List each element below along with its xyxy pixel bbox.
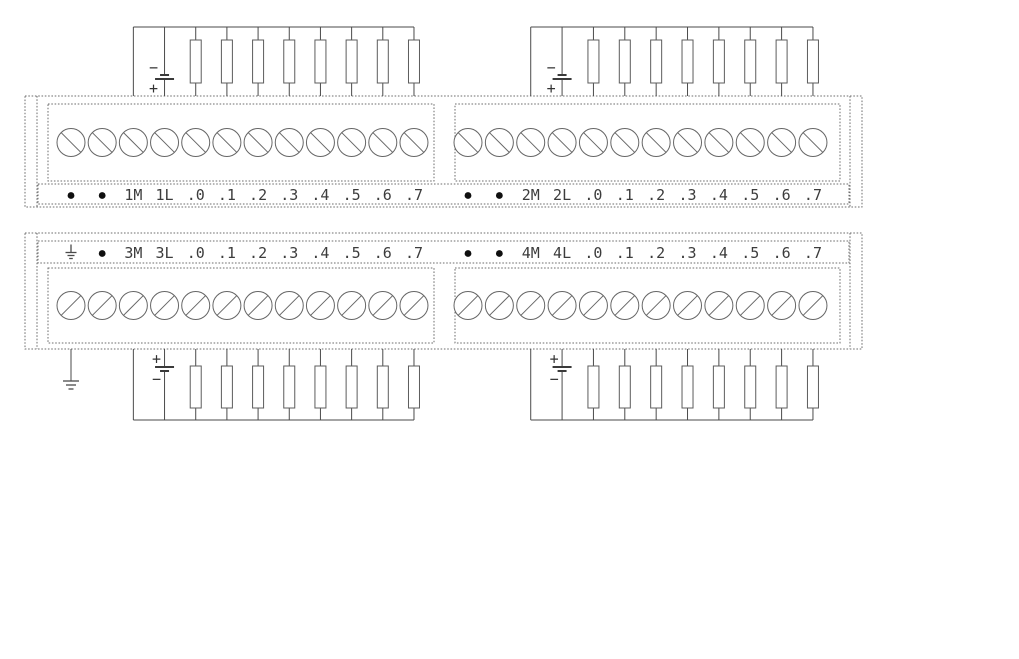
load-resistor [776,40,787,83]
terminal-label: 1M [124,186,142,204]
terminal-label: .1 [218,186,236,204]
terminal-label: .0 [187,186,205,204]
terminal-label: .3 [280,244,298,262]
terminal-label: .1 [616,244,634,262]
load-resistor [682,40,693,83]
terminal-label: .2 [249,186,267,204]
terminal-label: .7 [405,186,423,204]
load-resistor [221,366,232,408]
load-resistor [315,366,326,408]
terminal-marker-dot [99,192,106,199]
polarity-label: + [149,80,158,98]
load-resistor [807,40,818,83]
load-resistor [377,366,388,408]
terminal-label: .4 [311,186,329,204]
terminal-label: 4M [522,244,540,262]
polarity-label: + [547,80,556,98]
terminal-label: .3 [678,244,696,262]
terminal-label: .5 [741,244,759,262]
load-resistor [253,366,264,408]
terminal-label: .5 [741,186,759,204]
load-resistor [619,40,630,83]
terminal-label: 2M [522,186,540,204]
polarity-label: − [152,370,161,388]
terminal-label: .0 [187,244,205,262]
load-resistor [190,366,201,408]
page: 1M1L.0.1.2.3.4.5.6.7−+2M2L.0.1.2.3.4.5.6… [0,0,1019,659]
load-resistor [346,366,357,408]
terminal-label: .6 [374,244,392,262]
terminal-label: .6 [374,186,392,204]
terminal-marker-dot [465,192,472,199]
terminal-label: .4 [710,244,728,262]
terminal-label: .4 [710,186,728,204]
terminal-label: .5 [343,244,361,262]
load-resistor [284,40,295,83]
terminal-block-outline [25,96,862,207]
load-resistor [315,40,326,83]
terminal-label: .7 [405,244,423,262]
load-resistor [807,366,818,408]
terminal-marker-dot [496,250,503,257]
terminal-label: .0 [584,244,602,262]
terminal-label: .3 [678,186,696,204]
terminal-marker-dot [68,192,75,199]
polarity-label: − [547,59,556,77]
terminal-marker-dot [99,250,106,257]
load-resistor [377,40,388,83]
terminal-label: .6 [773,186,791,204]
polarity-label: + [550,350,559,368]
terminal-label: .7 [804,186,822,204]
terminal-label: .2 [647,186,665,204]
load-resistor [745,40,756,83]
load-resistor [408,366,419,408]
load-resistor [651,40,662,83]
wiring-diagram: 1M1L.0.1.2.3.4.5.6.7−+2M2L.0.1.2.3.4.5.6… [0,0,1019,659]
load-resistor [713,366,724,408]
load-resistor [588,40,599,83]
load-resistor [284,366,295,408]
polarity-label: + [152,350,161,368]
load-resistor [253,40,264,83]
terminal-label: .0 [584,186,602,204]
terminal-label: .3 [280,186,298,204]
terminal-block-outline [25,233,862,349]
terminal-label: .4 [311,244,329,262]
terminal-label: 4L [553,244,571,262]
load-resistor [190,40,201,83]
terminal-label: .1 [218,244,236,262]
load-resistor [713,40,724,83]
terminal-marker-dot [496,192,503,199]
terminal-label: .1 [616,186,634,204]
terminal-label: 3L [156,244,174,262]
terminal-label: 2L [553,186,571,204]
load-resistor [619,366,630,408]
terminal-label: .5 [343,186,361,204]
terminal-label: .2 [647,244,665,262]
terminal-label: 3M [124,244,142,262]
load-resistor [408,40,419,83]
load-resistor [682,366,693,408]
load-resistor [588,366,599,408]
load-resistor [221,40,232,83]
polarity-label: − [149,59,158,77]
load-resistor [745,366,756,408]
terminal-marker-dot [465,250,472,257]
load-resistor [776,366,787,408]
terminal-label: .7 [804,244,822,262]
load-resistor [651,366,662,408]
polarity-label: − [550,370,559,388]
terminal-label: 1L [156,186,174,204]
terminal-label: .6 [773,244,791,262]
terminal-label: .2 [249,244,267,262]
load-resistor [346,40,357,83]
